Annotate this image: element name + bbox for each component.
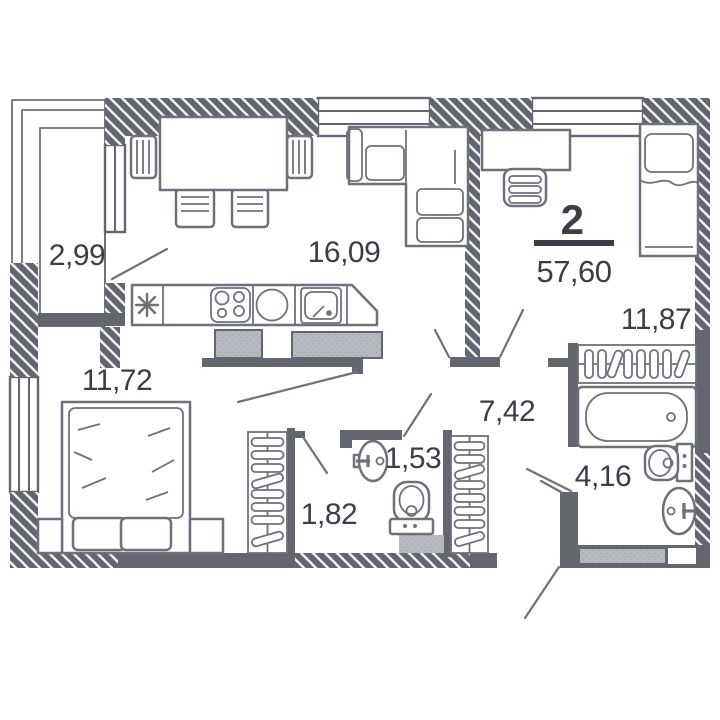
dining-chair-bottom-1 (176, 189, 214, 227)
room-area-bedroom-left: 11,72 (82, 364, 152, 397)
room-area-kitchen-living: 16,09 (308, 236, 381, 269)
floor-plan: 2,99 16,09 11,87 11,72 7,42 1,53 1,82 4,… (0, 0, 720, 720)
room-area-wc: 1,53 (385, 442, 441, 475)
window-balcony-kitchen (105, 145, 125, 232)
wardrobe-hallway (451, 436, 488, 553)
wardrobe-bedroom-left (248, 432, 287, 553)
room-area-bathroom: 4,16 (575, 460, 631, 493)
kitchen-counter (132, 285, 377, 325)
apartment-rooms-count: 2 (561, 196, 584, 243)
pillow-right (121, 518, 171, 550)
room-area-closet: 1,82 (301, 498, 357, 531)
wc-toilet (390, 482, 433, 534)
partition-kitchen-right (292, 332, 382, 358)
desk (482, 130, 570, 170)
bathroom-toilet (645, 444, 692, 481)
entrance-niche (668, 548, 696, 564)
room-area-bedroom-right: 11,87 (621, 303, 691, 336)
bathroom-washbasin (663, 488, 697, 534)
bathtub (578, 387, 696, 447)
entrance-threshold (580, 549, 665, 563)
pillow-left (73, 518, 125, 550)
dining-table (160, 117, 287, 190)
apartment-total-area: 57,60 (536, 254, 611, 289)
room-area-balcony: 2,99 (49, 239, 105, 272)
nightstand-right (190, 519, 223, 553)
wc-threshold (399, 535, 444, 553)
desk-chair (504, 169, 546, 206)
window-bedroom-left (10, 377, 38, 492)
room-area-hallway: 7,42 (479, 395, 535, 428)
single-bed (640, 124, 698, 256)
fridge-icon (136, 294, 158, 316)
dining-chair-bottom-2 (232, 189, 268, 227)
wardrobe-bathroom (578, 345, 696, 383)
partition-kitchen-left (215, 330, 262, 358)
summary-divider (534, 240, 614, 246)
nightstand-left (38, 519, 62, 553)
